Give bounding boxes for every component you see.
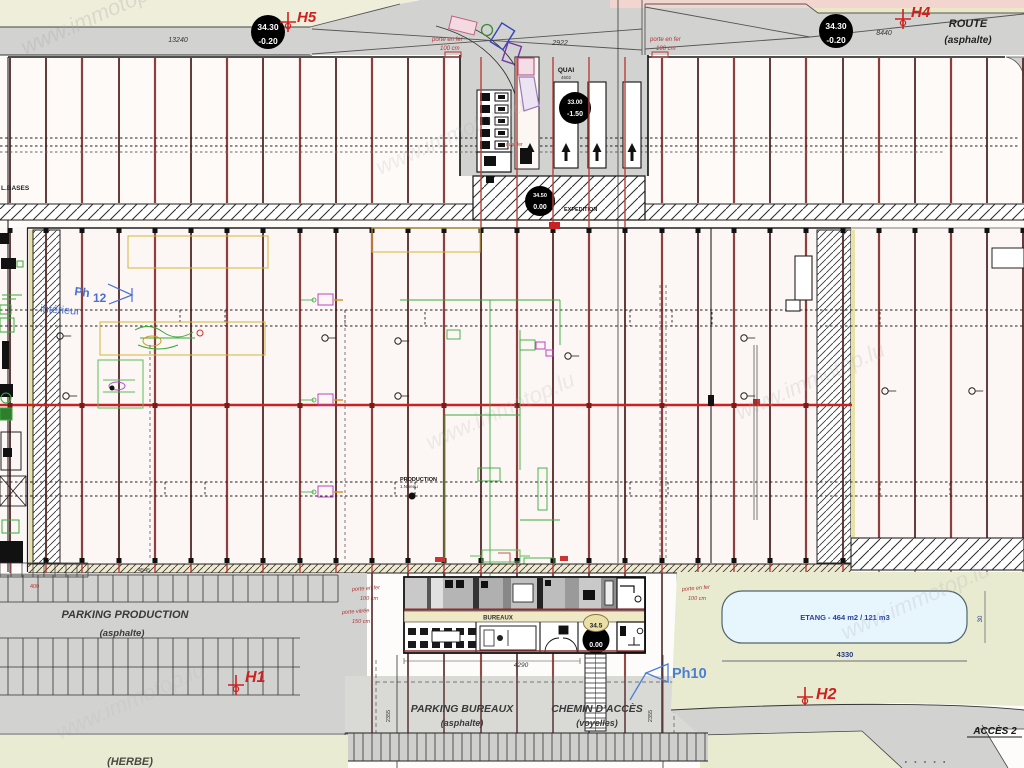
svg-text:H4: H4 [911,4,931,21]
svg-text:4290: 4290 [514,662,529,669]
svg-text:100 cm: 100 cm [688,596,706,602]
svg-text:33.00: 33.00 [567,100,583,106]
svg-text:2355: 2355 [648,710,654,722]
svg-text:quai fer: quai fer [506,142,523,148]
svg-text:13240: 13240 [168,37,188,44]
svg-text:(HERBE): (HERBE) [107,756,153,768]
svg-text:CHEMIN D’ACCÈS: CHEMIN D’ACCÈS [551,702,643,715]
svg-text:400: 400 [30,584,39,590]
svg-text:Ph: Ph [74,284,91,300]
svg-text:1.Niveau: 1.Niveau [400,484,418,489]
svg-text:ROUTE: ROUTE [949,18,988,30]
svg-text:(asphalte): (asphalte) [441,718,484,728]
svg-text:4330: 4330 [837,650,854,659]
svg-text:-0.20: -0.20 [826,35,846,45]
svg-text:100 cm: 100 cm [440,46,460,52]
svg-text:34.30: 34.30 [257,22,279,32]
svg-text:(voyelles): (voyelles) [576,718,618,728]
svg-text:L.BASES: L.BASES [1,185,30,192]
svg-text:BUREAUX: BUREAUX [483,616,513,622]
svg-text:PARKING PRODUCTION: PARKING PRODUCTION [62,609,190,621]
svg-text:EXPEDITION: EXPEDITION [564,207,597,213]
svg-text:4545: 4545 [138,568,150,574]
svg-text:100 cm: 100 cm [656,46,676,52]
svg-text:(asphalte): (asphalte) [100,628,145,639]
svg-text:Ph10: Ph10 [672,666,707,682]
svg-text:12: 12 [93,291,107,305]
svg-text:2922: 2922 [551,40,568,47]
svg-text:34.5: 34.5 [590,623,603,630]
svg-text:34.30: 34.30 [825,21,847,31]
svg-text:QUAI: QUAI [558,67,574,74]
svg-text:H2: H2 [816,686,837,703]
svg-text:2355: 2355 [386,710,392,722]
svg-text:150 cm: 150 cm [352,619,370,625]
svg-text:34.50: 34.50 [533,193,547,199]
svg-text:-0.20: -0.20 [258,36,278,46]
svg-text:0.00: 0.00 [589,642,603,649]
svg-text:H1: H1 [245,669,266,686]
svg-text:(asphalte): (asphalte) [944,35,992,46]
svg-text:PARKING BUREAUX: PARKING BUREAUX [411,703,514,715]
svg-text:ACCÈS 2: ACCÈS 2 [972,724,1017,737]
svg-text:8440: 8440 [876,30,892,37]
svg-text:0.00: 0.00 [533,204,547,211]
svg-text:porte en fer: porte en fer [431,37,464,43]
svg-text:-1.50: -1.50 [567,111,583,118]
svg-text:H5: H5 [297,9,317,26]
svg-text:PRODUCTION: PRODUCTION [400,477,437,483]
svg-text:4602: 4602 [561,75,572,80]
svg-text:30: 30 [978,615,984,622]
svg-text:porte en fer: porte en fer [649,37,682,43]
svg-text:100 cm: 100 cm [360,596,378,602]
